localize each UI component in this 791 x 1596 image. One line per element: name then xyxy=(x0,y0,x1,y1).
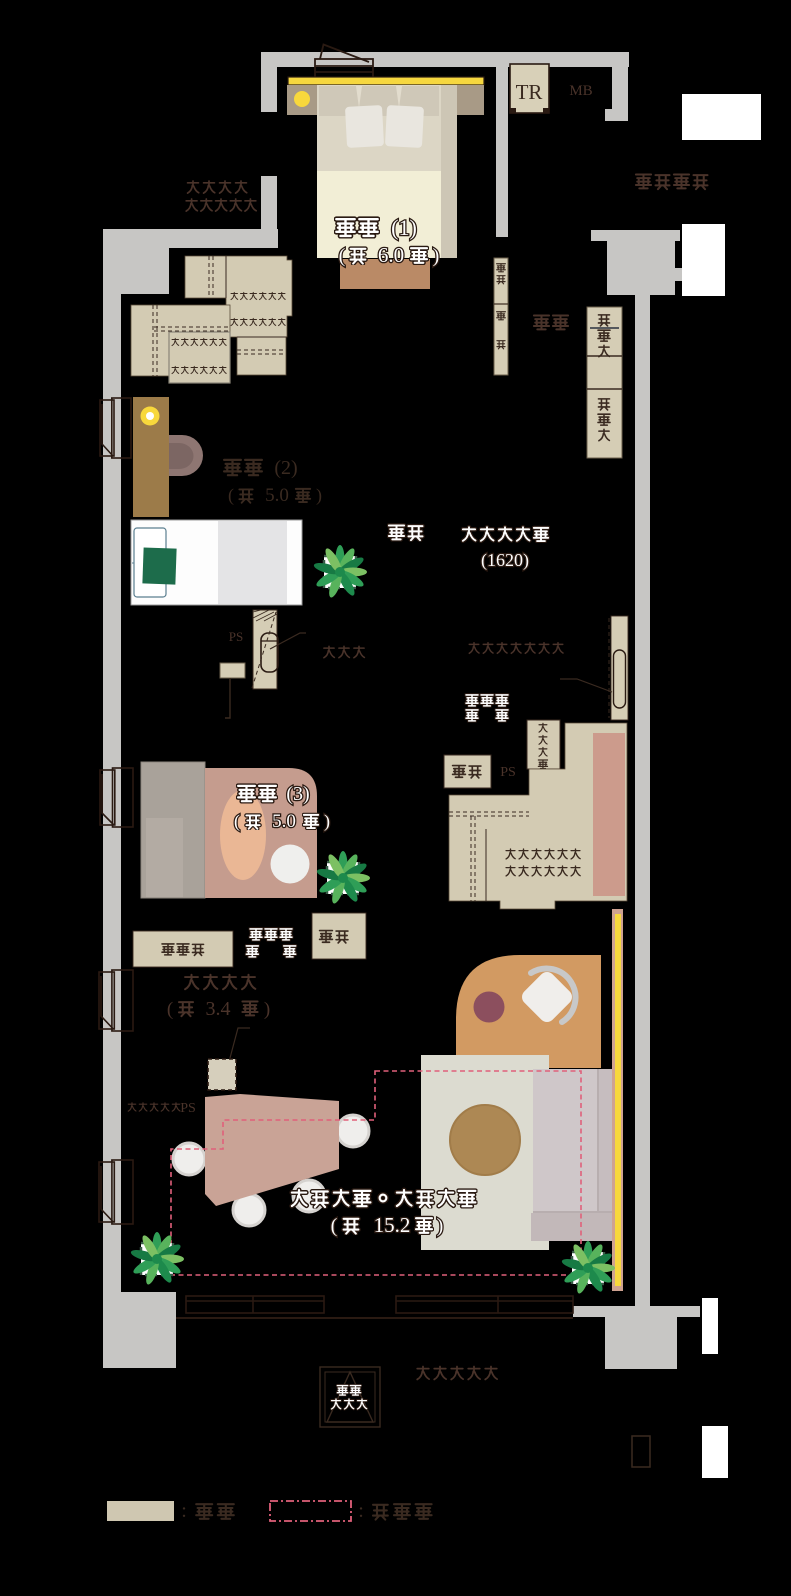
svg-text:): ) xyxy=(324,811,330,832)
svg-text:(1): (1) xyxy=(391,215,417,240)
svg-text:5.0: 5.0 xyxy=(272,811,296,832)
svg-text:PS: PS xyxy=(180,1101,196,1116)
svg-text:(: ( xyxy=(331,1215,338,1237)
svg-text:6.0: 6.0 xyxy=(378,243,404,267)
svg-text:(: ( xyxy=(339,245,346,267)
svg-text:(3): (3) xyxy=(286,783,309,805)
svg-text::: : xyxy=(358,1500,364,1522)
svg-text:TR: TR xyxy=(516,80,543,104)
svg-text:): ) xyxy=(316,485,322,506)
svg-text:PS: PS xyxy=(500,765,516,780)
svg-text::: : xyxy=(181,1500,187,1522)
svg-text:PS: PS xyxy=(229,629,243,644)
svg-text:(: ( xyxy=(234,811,240,832)
svg-text:(: ( xyxy=(167,999,173,1020)
svg-text:(: ( xyxy=(228,485,234,506)
svg-text:5.0: 5.0 xyxy=(265,485,289,506)
svg-text:): ) xyxy=(437,1215,444,1237)
svg-text:3.4: 3.4 xyxy=(206,998,231,1020)
svg-text:MB: MB xyxy=(569,83,592,99)
svg-text:(2): (2) xyxy=(274,457,297,479)
svg-text:(1620): (1620) xyxy=(481,550,529,571)
svg-text:): ) xyxy=(433,245,440,267)
svg-text:15.2: 15.2 xyxy=(374,1213,411,1237)
svg-text:): ) xyxy=(264,999,270,1020)
